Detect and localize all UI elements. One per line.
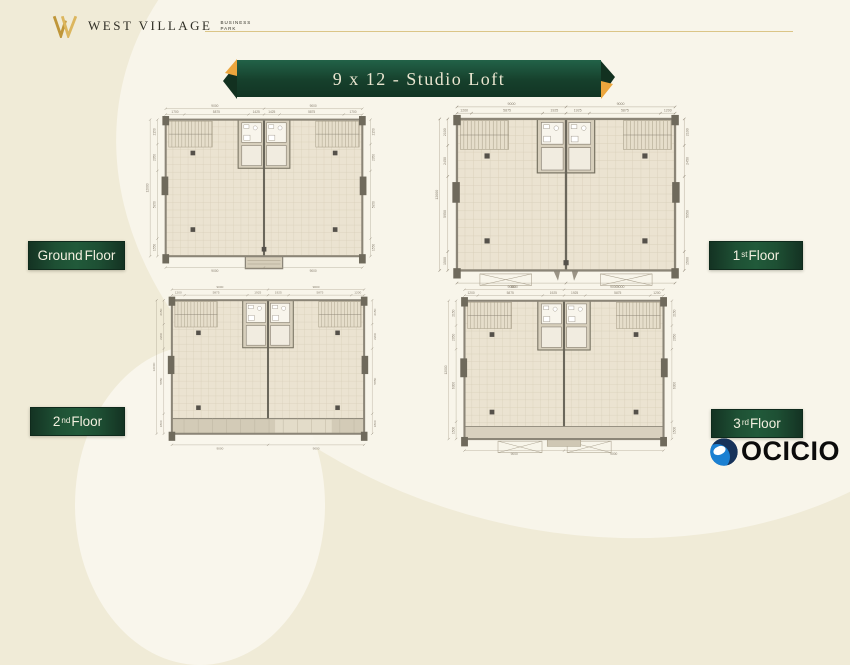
ocicio-logo-text: OCICIO (741, 436, 840, 467)
label-first-floor: 1st Floor (709, 241, 803, 270)
dimension-label: 2200 (373, 333, 377, 340)
dimension-label: 5875 (316, 291, 323, 295)
dimension-label: 1500 (685, 257, 689, 265)
dimension-label: 2200 (159, 333, 163, 340)
label-first-floor-text: 1 (733, 248, 741, 263)
dimension-label: 9000 (211, 269, 218, 273)
floor-plan-ground-floor: 1700587514251425587517009000900090009000… (145, 102, 383, 278)
dimension-label: 1700 (171, 110, 178, 114)
dimension-label: 9000 (310, 104, 317, 108)
dimension-label: 1200 (468, 291, 475, 295)
label-ground-floor: Ground Floor (28, 241, 125, 270)
label-second-floor: 2nd Floor (30, 407, 125, 436)
dimension-label: 12000 (444, 365, 448, 374)
dimension-label: 2150 (153, 128, 157, 135)
label-second-floor-text: 2 (53, 414, 61, 429)
dimension-label: 1550 (371, 244, 375, 251)
label-third-floor-ordinal: rd (742, 419, 749, 427)
dimension-label: 1925 (550, 291, 557, 295)
dimension-label: 6300 (451, 382, 455, 389)
dimension-label: 12000 (435, 190, 439, 200)
brand-name: WEST VILLAGE (88, 18, 212, 34)
dimension-label: 2150 (373, 308, 377, 315)
dimension-label: 2350 (371, 154, 375, 161)
dimension-label: 9000 (610, 285, 617, 289)
dimension-label: 1925 (550, 108, 558, 112)
floor-plan-third-floor: 1200587519251925587512009000900090009000… (430, 284, 698, 460)
dimension-label: 1200 (460, 108, 468, 112)
dimension-label: 1500 (443, 257, 447, 265)
dimension-label: 5875 (213, 110, 220, 114)
label-third-floor-text: 3 (733, 416, 741, 431)
header-divider-line (205, 31, 793, 32)
header: WEST VILLAGE BUSINESS PARK (52, 14, 251, 38)
label-third-floor: 3rd Floor (711, 409, 803, 438)
dimension-label: 9000 (216, 446, 223, 450)
dimension-label: 9000 (211, 104, 218, 108)
dimension-label: 5850 (373, 377, 377, 384)
dimension-label: 9000 (313, 446, 320, 450)
dimension-label: 1925 (574, 108, 582, 112)
floor-plan-first-floor: 1200587519251925587512009000900090009000… (434, 99, 698, 295)
title-ribbon-graphic: 9 x 12 - Studio Loft (222, 55, 616, 102)
dimension-label: 1200 (653, 291, 660, 295)
dimension-label: 5875 (503, 108, 511, 112)
dimension-label: 1425 (253, 110, 260, 114)
dimension-label: 1925 (571, 291, 578, 295)
title-ribbon: 9 x 12 - Studio Loft (222, 55, 616, 102)
dimension-label: 9000 (511, 285, 518, 289)
dimension-label: 1200 (175, 291, 182, 295)
floor-plan-drawing-ground-floor: 1700587514251425587517009000900090009000… (145, 102, 383, 278)
dimension-label: 1925 (254, 291, 261, 295)
floor-plan-drawing-second-floor: 1200587519251925587512009000900090009000… (148, 284, 388, 454)
floor-plan-drawing-third-floor: 1200587519251925587512009000900090009000… (430, 284, 698, 460)
dimension-label: 5875 (621, 108, 629, 112)
dimension-label: 2150 (673, 309, 677, 316)
dimension-label: 1800 (159, 420, 163, 427)
dimension-label: 9000 (610, 452, 617, 456)
dimension-label: 5875 (614, 291, 621, 295)
dimension-label: 5875 (507, 291, 514, 295)
ocicio-logo-icon (709, 437, 739, 467)
dimension-label: 1550 (153, 244, 157, 251)
label-third-floor-suffix: Floor (750, 416, 781, 431)
label-first-floor-suffix: Floor (748, 248, 779, 263)
label-ground-floor-text: Ground (38, 248, 83, 263)
dimension-label: 1700 (349, 110, 356, 114)
dimension-label: 2050 (451, 334, 455, 341)
dimension-label: 2100 (685, 128, 689, 136)
slide-title: 9 x 12 - Studio Loft (333, 69, 506, 89)
dimension-label: 1500 (673, 427, 677, 434)
west-village-logo-icon (52, 14, 78, 38)
dimension-label: 5950 (443, 210, 447, 218)
dimension-label: 1500 (451, 427, 455, 434)
dimension-label: 2050 (673, 334, 677, 341)
dimension-label: 5875 (213, 291, 220, 295)
ribbon-right-gold-fold (601, 81, 613, 99)
dimension-label: 2350 (153, 154, 157, 161)
dimension-label: 2450 (685, 157, 689, 165)
dimension-label: 5950 (371, 201, 375, 208)
ocicio-watermark: OCICIO (709, 436, 840, 467)
dimension-label: 1200 (664, 108, 672, 112)
dimension-label: 5850 (159, 377, 163, 384)
dimension-label: 5875 (308, 110, 315, 114)
label-second-floor-suffix: Floor (71, 414, 102, 429)
dimension-label: 12000 (152, 362, 156, 371)
dimension-label: 2150 (451, 309, 455, 316)
dimension-label: 6300 (673, 382, 677, 389)
dimension-label: 9000 (511, 452, 518, 456)
label-ground-floor-suffix: Floor (85, 248, 116, 263)
dimension-label: 9000 (617, 102, 625, 106)
ribbon-left-gold-fold (225, 59, 237, 76)
dimension-label: 2150 (159, 308, 163, 315)
dimension-label: 1200 (354, 291, 361, 295)
dimension-label: 2100 (443, 128, 447, 136)
dimension-label: 2150 (371, 128, 375, 135)
dimension-label: 9000 (310, 269, 317, 273)
dimension-label: 5950 (685, 210, 689, 218)
dimension-label: 1800 (373, 420, 377, 427)
dimension-label: 9000 (313, 285, 320, 289)
dimension-label: 5950 (153, 201, 157, 208)
dimension-label: 1925 (275, 291, 282, 295)
dimension-label: 1425 (268, 110, 275, 114)
floor-plan-drawing-first-floor: 1200587519251925587512009000900090009000… (434, 99, 698, 295)
dimension-label: 2450 (443, 157, 447, 165)
label-first-floor-ordinal: st (741, 251, 747, 259)
dimension-label: 9000 (508, 102, 516, 106)
dimension-label: 12000 (145, 183, 149, 192)
dimension-label: 9000 (216, 285, 223, 289)
floor-plan-second-floor: 1200587519251925587512009000900090009000… (148, 284, 388, 454)
label-second-floor-ordinal: nd (61, 417, 70, 425)
